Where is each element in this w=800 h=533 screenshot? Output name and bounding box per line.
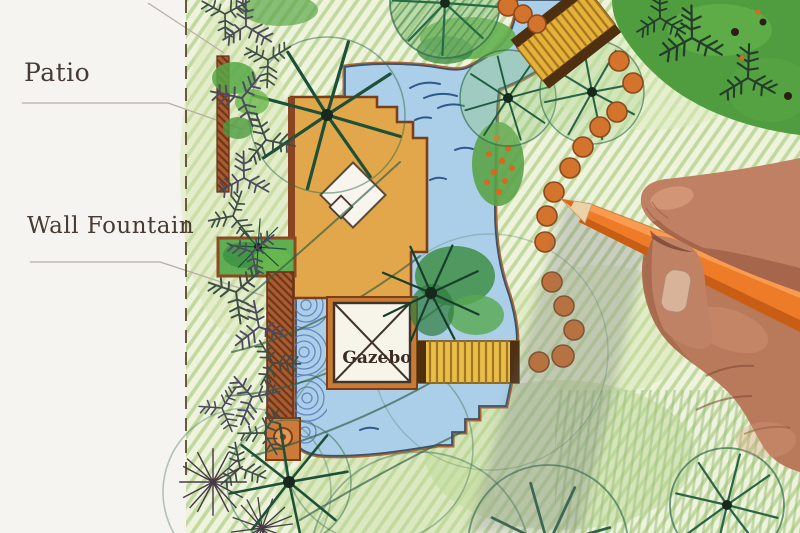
label-patio: Patio — [24, 58, 90, 87]
deck-steps — [417, 341, 519, 383]
label-wall-fountain: Wall Fountain — [27, 213, 194, 239]
photo-landscape-plan: Gazebo — [0, 0, 800, 533]
plan-drawing: Gazebo — [0, 0, 800, 533]
gazebo: Gazebo — [327, 297, 417, 389]
label-gazebo: Gazebo — [342, 348, 411, 368]
